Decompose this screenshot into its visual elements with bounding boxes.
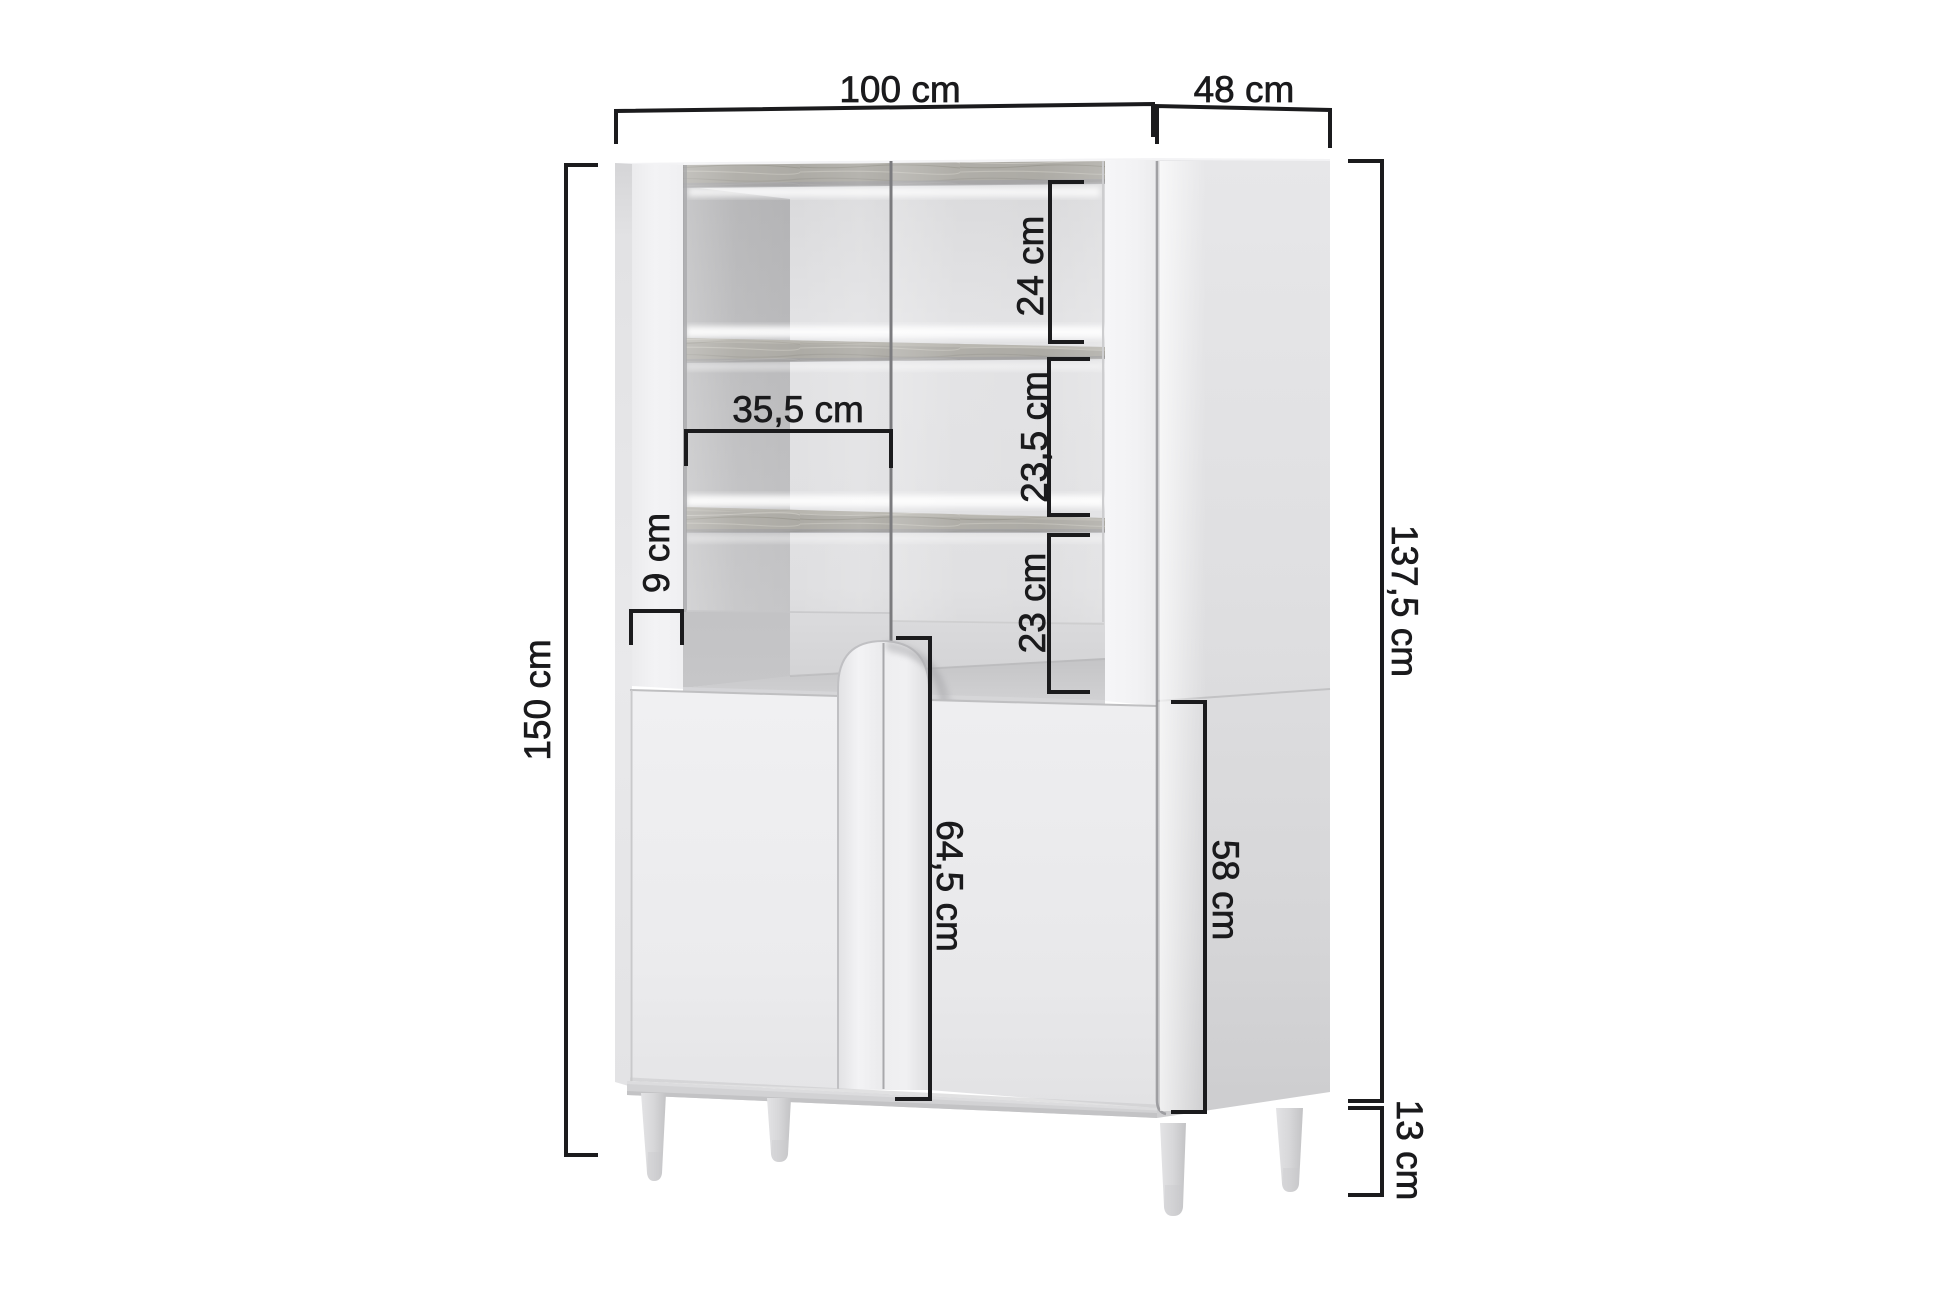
svg-text:137,5 cm: 137,5 cm xyxy=(1384,525,1425,677)
svg-text:23,5 cm: 23,5 cm xyxy=(1014,371,1055,503)
svg-text:150 cm: 150 cm xyxy=(517,639,558,760)
svg-text:64,5 cm: 64,5 cm xyxy=(929,820,970,952)
svg-text:58 cm: 58 cm xyxy=(1205,840,1246,941)
svg-text:24 cm: 24 cm xyxy=(1010,216,1051,317)
svg-text:35,5 cm: 35,5 cm xyxy=(732,389,864,430)
svg-text:13 cm: 13 cm xyxy=(1389,1100,1430,1201)
svg-text:23 cm: 23 cm xyxy=(1012,553,1053,654)
svg-text:48 cm: 48 cm xyxy=(1194,69,1295,110)
svg-text:100 cm: 100 cm xyxy=(839,69,960,110)
svg-text:9 cm: 9 cm xyxy=(636,513,677,593)
